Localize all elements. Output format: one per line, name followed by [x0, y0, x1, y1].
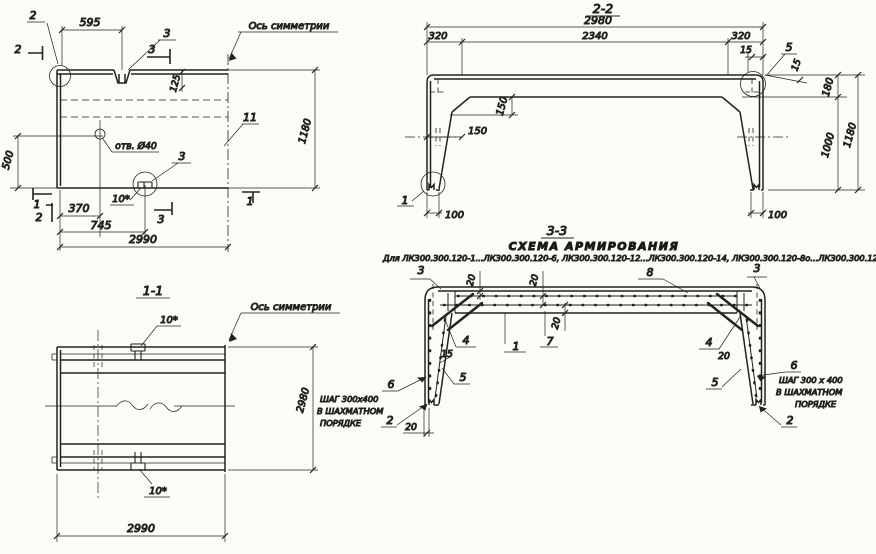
s33-applicability: Для ЛК300.300.120-1...ЛК300.300.120-6, Л…: [382, 253, 876, 263]
s33-label-8: 8: [647, 266, 654, 279]
s33-label-5-left: 5: [460, 371, 467, 384]
s22-dim-320-left: 320: [428, 31, 447, 42]
s22-dim-15-top: 15: [740, 45, 752, 56]
s22-dim-2980: 2980: [584, 14, 612, 27]
plan-label-3-top: 3: [164, 27, 171, 40]
plan-detail-2-label: 2: [30, 9, 37, 22]
s33-dim-20-top2: 20: [528, 273, 542, 287]
s22-dim-lines: [397, 22, 865, 218]
plan-dim-2990: 2990: [129, 233, 157, 246]
s22-dim-150-h: 150: [468, 126, 487, 137]
s33-diagonal-bars: [432, 294, 758, 330]
plan-cut-1-right: 1: [247, 195, 254, 208]
s33-dim-20-right: 20: [718, 351, 730, 362]
section-2-2: 2-2 2980 320 2340 320 15 5 15 180 150 15…: [397, 1, 865, 221]
plan-dim-500: 500: [1, 150, 17, 171]
plan-label-3-bottom: 3: [179, 150, 186, 163]
s33-label-6-left: 6: [388, 378, 395, 391]
s33-note-left-2: В ШАХМАТНОМ: [317, 406, 383, 416]
plan-dim-1180: 1180: [297, 118, 314, 145]
s33-label-2-right: 2: [787, 414, 794, 427]
s33-dim-15: 15: [441, 349, 453, 360]
plan-pos-11: 11: [243, 111, 257, 124]
s33-subtitle: СХЕМА АРМИРОВАНИЯ: [509, 240, 680, 253]
s22-dim-320-right: 320: [731, 31, 750, 42]
s22-dim-1000: 1000: [820, 132, 837, 159]
s22-dim-15-slope: 15: [789, 58, 803, 73]
s22-dim-1180: 1180: [842, 122, 859, 149]
plan-outline: [57, 70, 228, 188]
plan-leaders: [27, 22, 338, 205]
blueprint-page: 2 595 3 3 Ось симметрии 125 1180 11 отв.…: [0, 0, 876, 554]
plan-dim-125: 125: [168, 73, 183, 93]
s33-note-left-1: ШАГ 300х400: [320, 394, 378, 404]
s22-dim-100-left: 100: [445, 210, 464, 221]
plan-cut-2-left: 2: [15, 43, 22, 56]
s22-dim-180: 180: [821, 77, 837, 98]
s33-label-6-right: 6: [791, 359, 798, 372]
s33-label-2-left: 2: [387, 414, 394, 427]
s33-label-3-left: 3: [418, 264, 425, 277]
s22-detail-circle-left-leg: [421, 172, 445, 196]
s33-note-right-2: В ШАХМАТНОМ: [776, 387, 842, 397]
s11-thin-edges: [52, 354, 225, 463]
s33-dim-20-bottom: 20: [405, 422, 417, 433]
s33-label-4-right: 4: [706, 336, 713, 349]
s11-notches: [131, 344, 145, 470]
plan-cut-2-bottom: 2: [36, 211, 43, 224]
s11-dim-2980: 2980: [295, 387, 312, 414]
s11-title: 1-1: [143, 283, 163, 298]
s11-mark-10-top: 10*: [160, 315, 178, 326]
s22-dim-100-right: 100: [768, 210, 787, 221]
s22-dim-2340: 2340: [582, 31, 607, 42]
plan-axis-arrowhead: [229, 53, 237, 62]
s11-mark-10-bottom: 10*: [149, 486, 167, 497]
plan-mark-10: 10*: [112, 194, 130, 205]
s33-note-left-3: ПОРЯДКЕ: [320, 418, 362, 428]
plan-view: 2 595 3 3 Ось симметрии 125 1180 11 отв.…: [1, 9, 338, 252]
s22-label-5: 5: [786, 41, 793, 54]
s11-axis-label: Ось симметрии: [251, 302, 332, 313]
plan-axis-label: Ось симметрии: [249, 21, 330, 32]
plan-dim-745: 745: [91, 219, 112, 232]
s33-label-1: 1: [513, 340, 520, 353]
s11-dim-lines: [57, 298, 340, 542]
s33-dim-20-top1: 20: [465, 273, 479, 287]
s33-note-right-3: ПОРЯДКЕ: [795, 399, 837, 409]
s33-label-4-left: 4: [463, 334, 470, 347]
s33-label-5-right: 5: [712, 376, 719, 389]
s33-label-3-right: 3: [754, 262, 761, 275]
plan-cut-3-top: 3: [149, 43, 156, 56]
plan-cut-3-bottom: 3: [158, 213, 165, 226]
drawing-canvas: 2 595 3 3 Ось симметрии 125 1180 11 отв.…: [0, 0, 876, 554]
s33-label-7: 7: [547, 335, 554, 348]
plan-cut-1-left: 1: [34, 198, 41, 211]
s22-dim-ticks: [424, 24, 861, 216]
s33-dim-20-mid: 20: [550, 316, 564, 330]
plan-hole-label: отв. Ø40: [115, 141, 157, 152]
section-3-3: 3-3 СХЕМА АРМИРОВАНИЯ Для ЛК300.300.120-…: [317, 223, 876, 437]
s33-note-right-1: ШАГ 300 х 400: [779, 375, 843, 385]
plan-dim-595: 595: [80, 16, 101, 29]
section-1-1: 1-1 Ось симметрии 10* 10* 2980 2990: [45, 283, 340, 542]
plan-hidden-lines: [60, 100, 228, 117]
s22-dim-150-v: 150: [495, 96, 511, 117]
s11-break-line: [45, 401, 235, 412]
s33-title: 3-3: [547, 223, 567, 238]
s11-dim-2990: 2990: [127, 522, 155, 535]
s11-axis-arrowhead: [229, 333, 237, 342]
plan-dim-370: 370: [69, 202, 90, 215]
s22-label-1: 1: [402, 194, 409, 207]
